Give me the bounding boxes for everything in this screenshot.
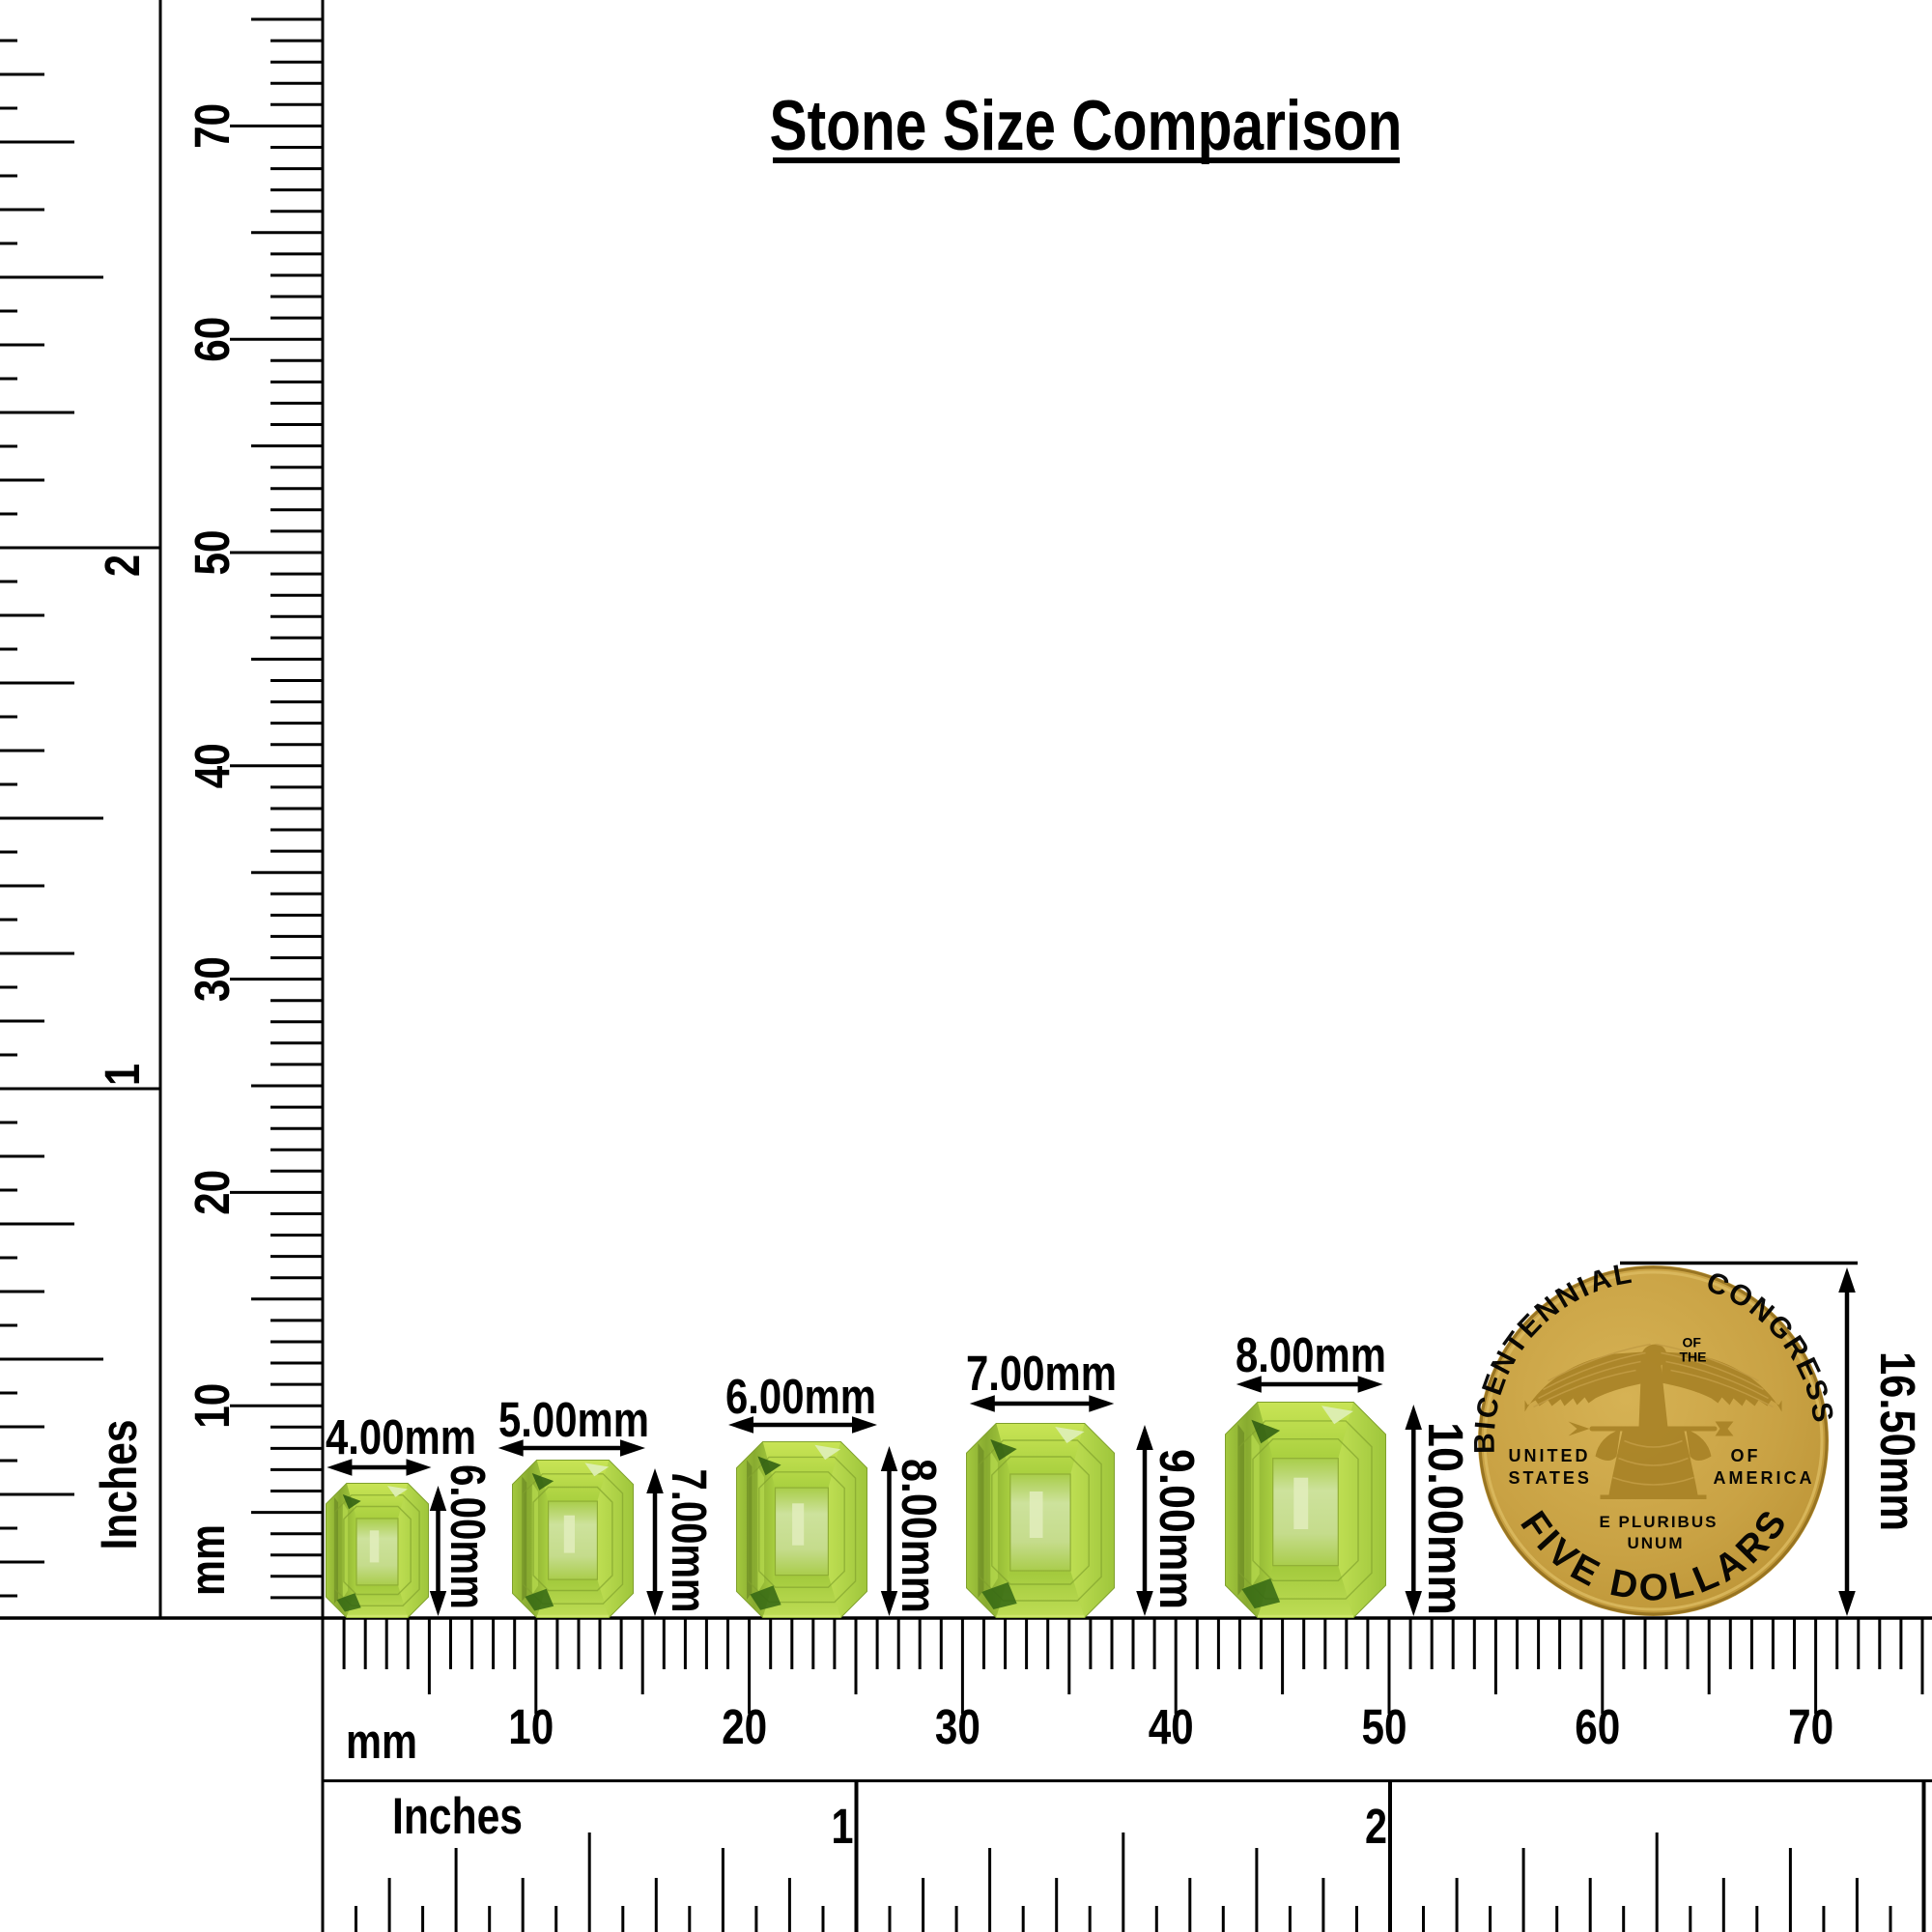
svg-text:6.00mm: 6.00mm: [440, 1464, 496, 1609]
svg-text:20: 20: [722, 1699, 767, 1754]
svg-text:Stone Size Comparison: Stone Size Comparison: [770, 87, 1403, 165]
svg-text:E PLURIBUS: E PLURIBUS: [1600, 1513, 1719, 1531]
svg-text:10: 10: [185, 1383, 240, 1429]
svg-text:THE: THE: [1680, 1350, 1707, 1365]
svg-text:9.00mm: 9.00mm: [1150, 1449, 1205, 1609]
svg-text:60: 60: [185, 317, 240, 362]
svg-text:Inches: Inches: [91, 1420, 148, 1550]
svg-text:2: 2: [1365, 1799, 1387, 1854]
svg-text:OF: OF: [1683, 1335, 1702, 1350]
svg-text:5.00mm: 5.00mm: [498, 1392, 649, 1447]
svg-text:4.00mm: 4.00mm: [326, 1409, 476, 1464]
svg-text:7.00mm: 7.00mm: [662, 1469, 717, 1613]
svg-text:8.00mm: 8.00mm: [1236, 1327, 1386, 1382]
svg-text:70: 70: [1788, 1699, 1833, 1754]
svg-text:50: 50: [1362, 1699, 1407, 1754]
svg-text:20: 20: [185, 1170, 240, 1215]
svg-text:UNITED: UNITED: [1509, 1446, 1591, 1465]
svg-text:STATES: STATES: [1509, 1468, 1592, 1488]
svg-text:1: 1: [95, 1064, 150, 1086]
svg-text:UNUM: UNUM: [1628, 1534, 1685, 1552]
svg-text:7.00mm: 7.00mm: [966, 1346, 1117, 1401]
svg-text:2: 2: [95, 554, 150, 577]
svg-text:OF: OF: [1731, 1446, 1761, 1465]
svg-text:AMERICA: AMERICA: [1714, 1468, 1815, 1488]
svg-text:30: 30: [935, 1699, 980, 1754]
svg-text:10.00mm: 10.00mm: [1418, 1422, 1473, 1615]
svg-text:40: 40: [1149, 1699, 1194, 1754]
svg-text:50: 50: [185, 530, 240, 576]
svg-text:6.00mm: 6.00mm: [725, 1369, 876, 1424]
svg-text:mm: mm: [346, 1714, 417, 1769]
svg-text:70: 70: [185, 103, 240, 149]
svg-text:60: 60: [1575, 1699, 1620, 1754]
svg-text:8.00mm: 8.00mm: [892, 1459, 947, 1613]
svg-text:10: 10: [508, 1699, 554, 1754]
svg-text:16.50mm: 16.50mm: [1870, 1351, 1925, 1531]
svg-text:Inches: Inches: [392, 1788, 523, 1845]
svg-text:40: 40: [185, 743, 240, 788]
svg-text:mm: mm: [180, 1524, 235, 1596]
svg-text:30: 30: [185, 956, 240, 1002]
svg-text:1: 1: [832, 1799, 854, 1854]
